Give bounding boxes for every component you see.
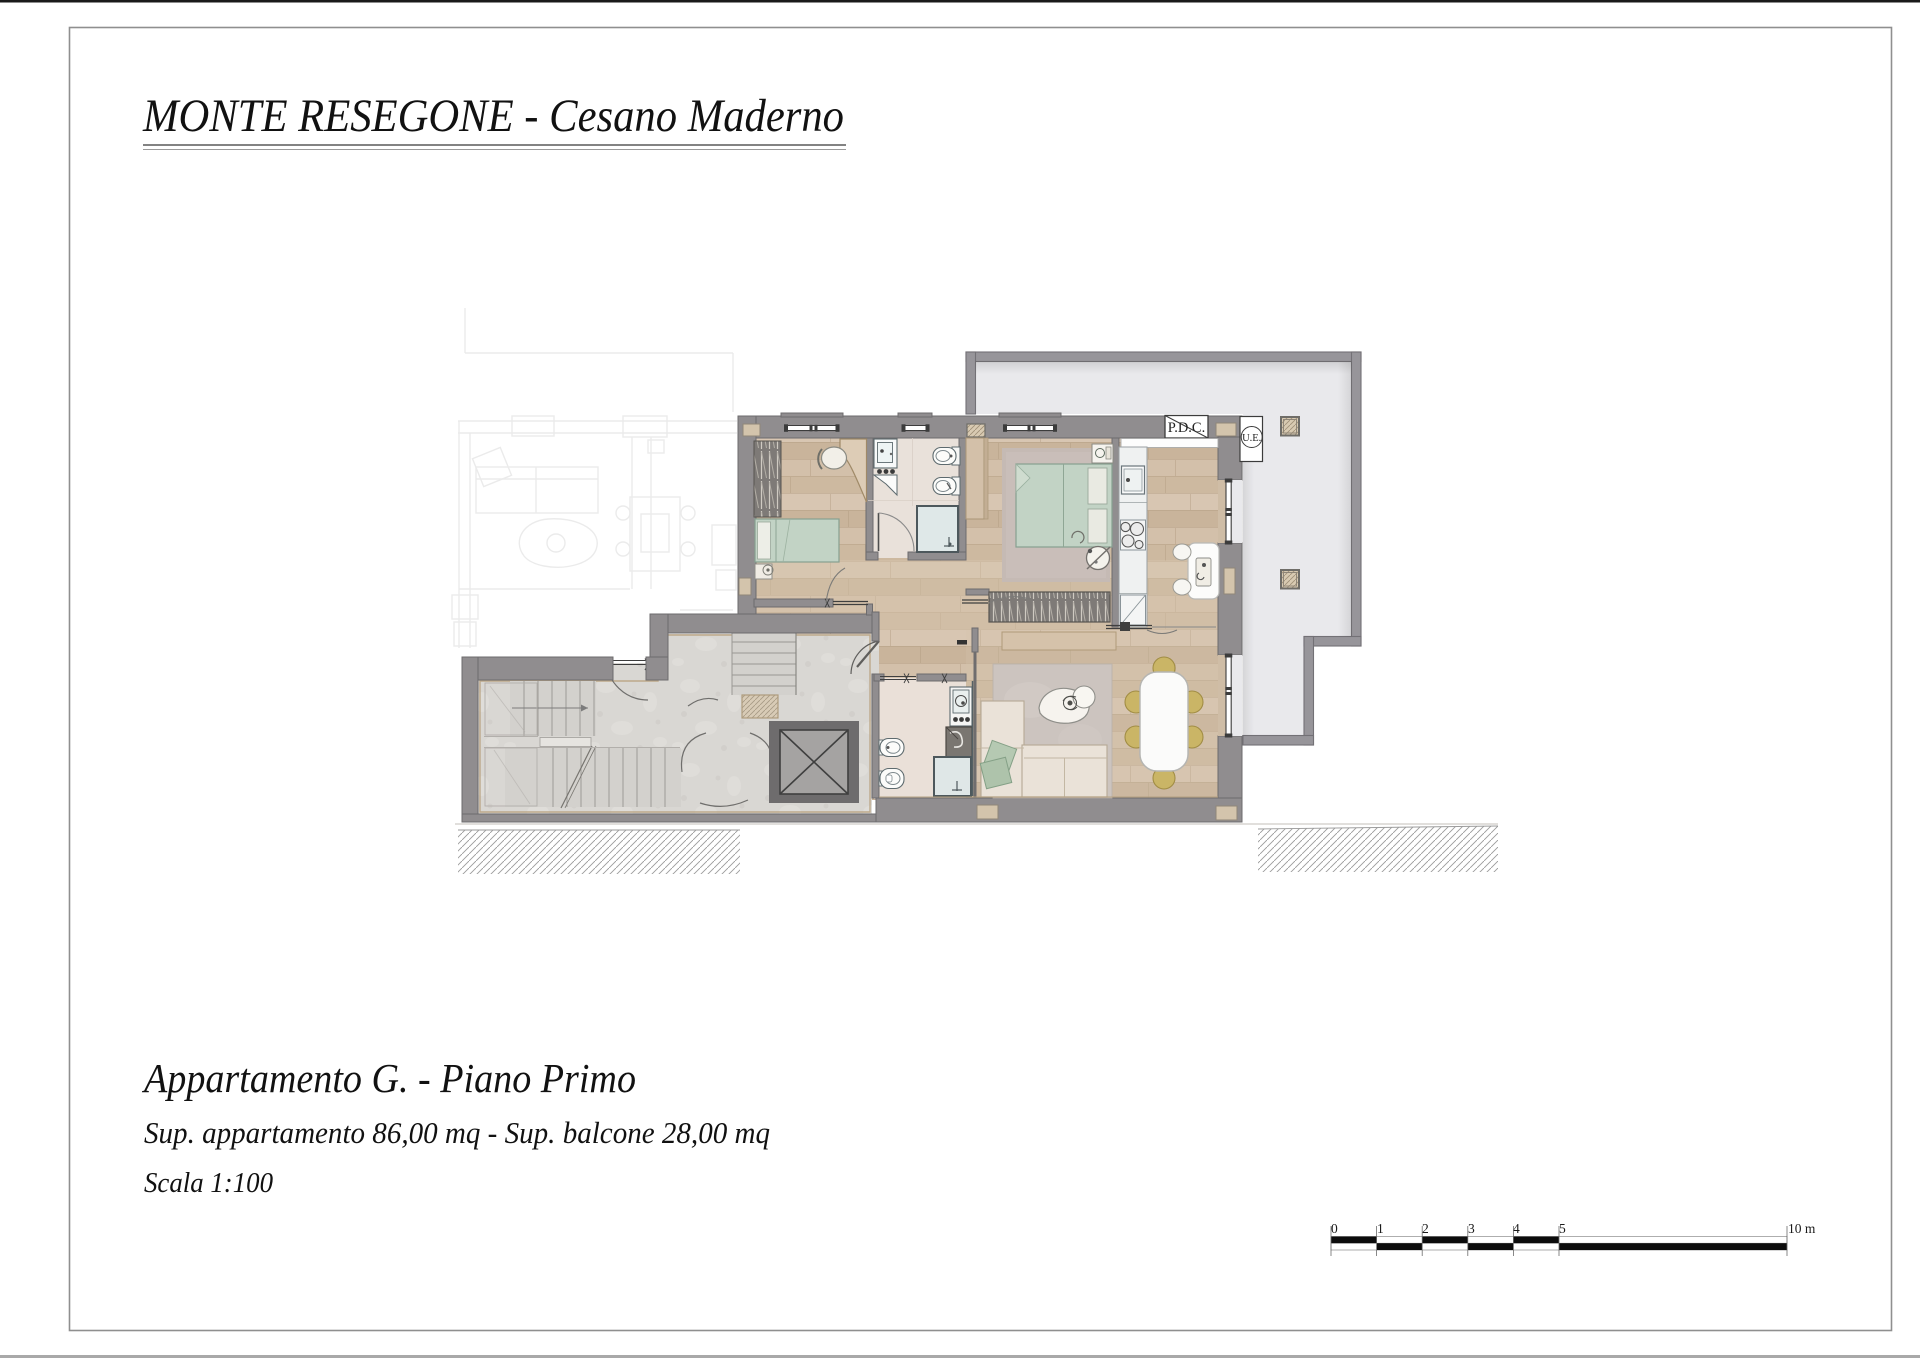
svg-text:Scala 1:100: Scala 1:100 bbox=[144, 1167, 273, 1199]
svg-text:MONTE RESEGONE - Cesano Madern: MONTE RESEGONE - Cesano Maderno bbox=[142, 91, 844, 142]
svg-text:U.E.: U.E. bbox=[1242, 433, 1261, 444]
svg-text:2: 2 bbox=[1422, 1221, 1429, 1236]
svg-text:4: 4 bbox=[1513, 1221, 1520, 1236]
svg-text:5: 5 bbox=[1559, 1221, 1566, 1236]
svg-text:Sup. appartamento 86,00 mq - S: Sup. appartamento 86,00 mq - Sup. balcon… bbox=[144, 1115, 770, 1150]
svg-text:Appartamento G. - Piano Primo: Appartamento G. - Piano Primo bbox=[141, 1055, 636, 1101]
svg-text:10 m: 10 m bbox=[1788, 1221, 1816, 1236]
svg-text:P.D.C.: P.D.C. bbox=[1168, 420, 1205, 436]
svg-text:3: 3 bbox=[1468, 1221, 1475, 1236]
svg-text:0: 0 bbox=[1331, 1221, 1338, 1236]
svg-text:1: 1 bbox=[1377, 1221, 1384, 1236]
